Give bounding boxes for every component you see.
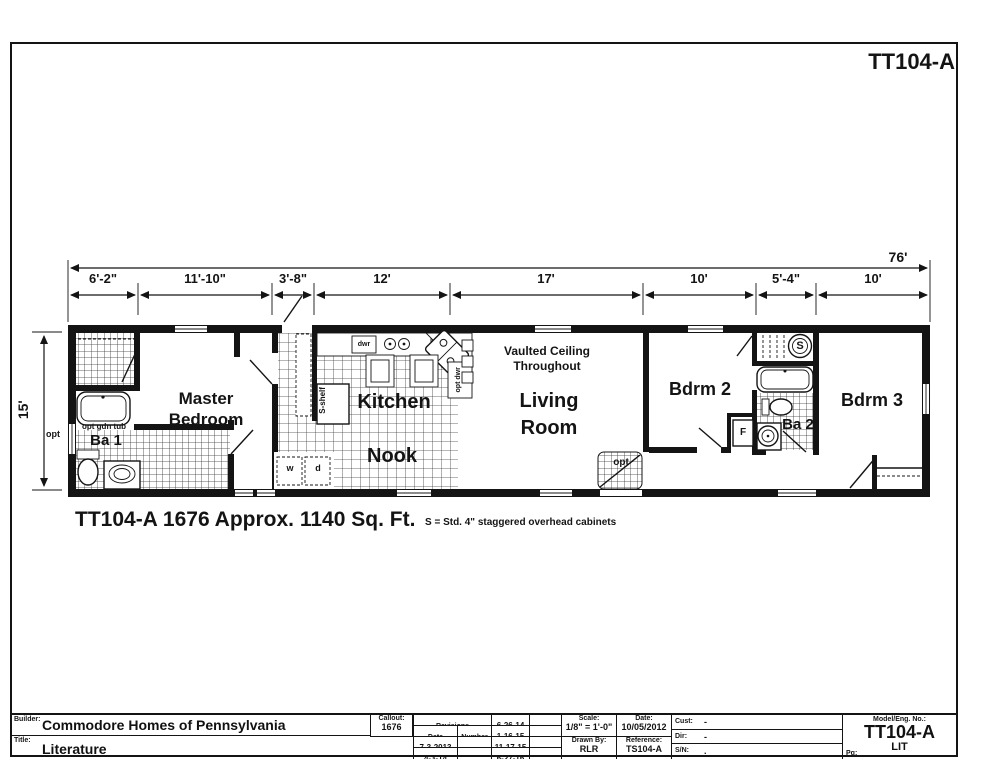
- dir-label: Dir:: [675, 733, 687, 740]
- opt-rear-door-label: opt: [613, 457, 629, 468]
- bdrm2-label: Bdrm 2: [669, 380, 731, 400]
- callout-cell: Callout: 1676: [370, 715, 413, 737]
- shower-tile: [76, 333, 134, 385]
- reference-value: TS104-A: [617, 744, 671, 754]
- revisions-header: Revisions: [413, 715, 491, 726]
- date-label: Date:: [617, 715, 671, 722]
- date-value: 10/05/2012: [617, 722, 671, 732]
- rev2-date-4-value: 6-27-16: [497, 754, 525, 759]
- s-shelf-label: S-shelf: [319, 387, 328, 414]
- drawn-by-label: Drawn By:: [562, 737, 616, 744]
- living-room-label: Living Room: [509, 388, 589, 442]
- ba1-label: Ba 1: [90, 433, 122, 450]
- cust-label: Cust:: [675, 718, 693, 725]
- master-bedroom-label: Master Bedroom: [156, 388, 256, 430]
- rev1-date-1: 7-3-2013: [413, 737, 457, 748]
- pg-value: LIT: [843, 741, 956, 753]
- washer-dryer-icons: [274, 452, 334, 489]
- rev-number-header: Number: [457, 726, 491, 737]
- bdrm3-closet: [877, 468, 922, 476]
- rev2-num-2: .: [529, 726, 561, 737]
- bdrm3-label: Bdrm 3: [841, 391, 903, 411]
- entry-closet: [296, 334, 311, 416]
- cust-value: -: [704, 717, 707, 727]
- callout-label: Callout:: [371, 715, 412, 722]
- floor-plan-drawing: [0, 0, 995, 768]
- opt-gdn-tub-label: opt gdn tub: [82, 423, 126, 432]
- bath1-vanity-sink-icon: [104, 461, 140, 489]
- drawn-by-value: RLR: [562, 744, 616, 754]
- tall-cabinets: [462, 340, 473, 383]
- rev1-num-2-value: .: [473, 754, 475, 759]
- overall-width-dim: 76': [889, 250, 908, 265]
- toilet2-icon: [762, 399, 792, 415]
- front-entry-door: [282, 296, 312, 333]
- dryer-label: d: [315, 464, 321, 474]
- plan-caption: TT104-A 1676 Approx. 1140 Sq. Ft.: [75, 508, 415, 531]
- scale-value: 1/8" = 1'-0": [562, 722, 616, 732]
- title-block: Builder: Commodore Homes of Pennsylvania…: [10, 713, 958, 757]
- rev1-num-2: .: [457, 748, 491, 759]
- opt-window-label: opt: [46, 430, 60, 440]
- date-cell: Date: 10/05/2012: [616, 715, 671, 737]
- dir-value: -: [704, 732, 707, 742]
- dim-segment-1: 11'-10": [184, 272, 226, 286]
- cust-cell: Cust: -: [671, 715, 842, 730]
- cabinet-note: S = Std. 4" staggered overhead cabinets: [425, 517, 616, 528]
- dim-segment-7: 10': [864, 272, 882, 286]
- sn-label: S/N:: [675, 747, 689, 754]
- title-cell: Title: Literature: [12, 736, 370, 759]
- dim-segment-6: 5'-4": [772, 272, 800, 286]
- ba2-label: Ba 2: [782, 417, 814, 434]
- dim-segment-2: 3'-8": [279, 272, 307, 286]
- rev2-date-2: 1-16-15: [491, 726, 529, 737]
- rev1-date-2-value: 4-3-14: [424, 754, 447, 759]
- rev1-date-2: 4-3-14: [413, 748, 457, 759]
- kitchen-label: Kitchen: [357, 391, 430, 413]
- pg-label: Pg:: [846, 750, 857, 757]
- sn-cell: S/N: .: [671, 744, 842, 759]
- callout-value: 1676: [371, 722, 412, 732]
- builder-name: Commodore Homes of Pennsylvania: [42, 717, 286, 733]
- model-value: TT104-A: [843, 723, 956, 741]
- scale-cell: Scale: 1/8" = 1'-0": [561, 715, 616, 737]
- rev2-num-4-value: .: [544, 754, 546, 759]
- dim-segment-0: 6'-2": [89, 272, 117, 286]
- builder-field-label: Builder:: [14, 716, 40, 723]
- model-cell: Model/Eng. No.: TT104-A Pg: LIT: [842, 715, 956, 759]
- water-heater-closet: [758, 334, 786, 360]
- dim-segment-5: 10': [690, 272, 708, 286]
- rev-date-header: Date: [413, 726, 457, 737]
- toilet-icon: [77, 450, 99, 485]
- drawing-sheet: TT104-A 76' 6'-2" 11'-10" 3'-8" 12' 17' …: [0, 0, 995, 768]
- garden-tub-icon: [77, 392, 130, 425]
- drawn-by-cell: Drawn By: RLR: [561, 737, 616, 759]
- dim-segment-3: 12': [373, 272, 391, 286]
- sn-value: .: [704, 746, 707, 756]
- rev2-num-3: .: [529, 737, 561, 748]
- rev2-date-4: 6-27-16: [491, 748, 529, 759]
- rev2-num-1: .: [529, 715, 561, 726]
- washer-label: w: [286, 464, 293, 474]
- drawing-title: Literature: [42, 741, 107, 757]
- overall-depth-dim: 15': [16, 400, 31, 419]
- scale-label: Scale:: [562, 715, 616, 722]
- water-heater-label: S: [796, 340, 803, 352]
- dim-segment-4: 17': [537, 272, 555, 286]
- drawer-label: dwr: [358, 341, 370, 349]
- tub2-icon: [757, 367, 813, 392]
- rev2-date-1: 6-26-14: [491, 715, 529, 726]
- vaulted-ceiling-note: Vaulted Ceiling Throughout: [487, 344, 607, 374]
- nook-label: Nook: [367, 445, 417, 467]
- reference-cell: Reference: TS104-A: [616, 737, 671, 759]
- bath2-vanity-sink-icon: [757, 423, 781, 450]
- rev1-num-1: .: [457, 737, 491, 748]
- furnace-label: F: [740, 427, 746, 438]
- reference-label: Reference:: [617, 737, 671, 744]
- opt-dwr-label: opt dwr: [455, 367, 463, 392]
- sheet-code: TT104-A: [865, 50, 955, 74]
- dir-cell: Dir: -: [671, 730, 842, 744]
- rev2-num-4: .: [529, 748, 561, 759]
- rev2-date-3: 11-17-15: [491, 737, 529, 748]
- builder-cell: Builder: Commodore Homes of Pennsylvania: [12, 715, 370, 736]
- title-field-label: Title:: [14, 737, 31, 744]
